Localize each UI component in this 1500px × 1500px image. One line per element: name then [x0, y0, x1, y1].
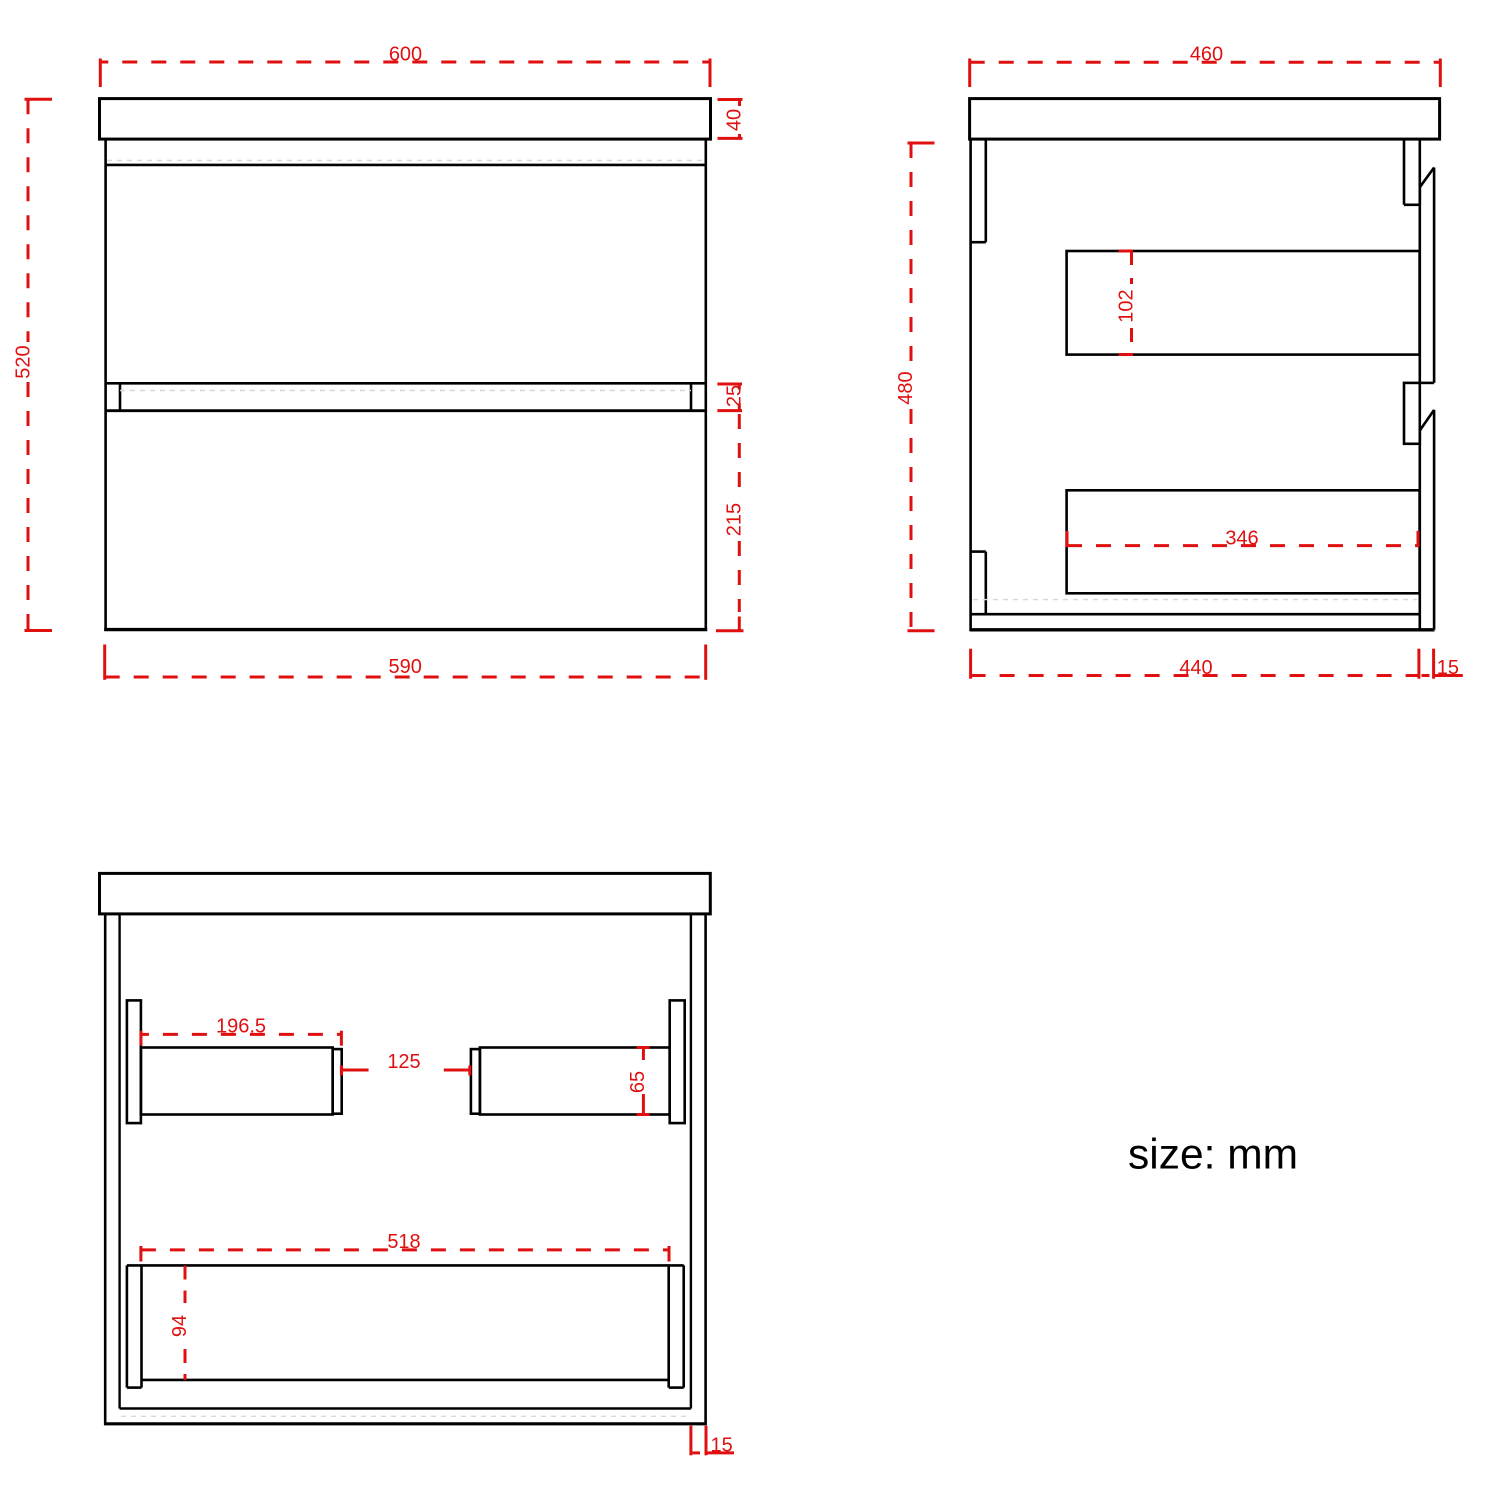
svg-text:65: 65 — [627, 1071, 649, 1093]
svg-text:518: 518 — [387, 1231, 420, 1253]
svg-text:125: 125 — [387, 1051, 420, 1073]
svg-text:94: 94 — [169, 1315, 191, 1337]
svg-text:346: 346 — [1225, 528, 1258, 550]
svg-text:40: 40 — [724, 109, 746, 131]
svg-text:520: 520 — [13, 345, 35, 378]
svg-text:15: 15 — [711, 1434, 733, 1456]
svg-text:196.5: 196.5 — [216, 1015, 266, 1037]
svg-text:600: 600 — [389, 44, 422, 66]
svg-text:460: 460 — [1190, 44, 1223, 66]
svg-text:size: mm: size: mm — [1128, 1132, 1298, 1179]
svg-text:440: 440 — [1179, 657, 1212, 679]
svg-text:590: 590 — [389, 656, 422, 678]
svg-text:480: 480 — [895, 371, 917, 404]
svg-text:25: 25 — [723, 385, 745, 407]
svg-text:215: 215 — [723, 503, 745, 536]
svg-text:15: 15 — [1437, 657, 1459, 679]
svg-text:102: 102 — [1115, 289, 1137, 322]
